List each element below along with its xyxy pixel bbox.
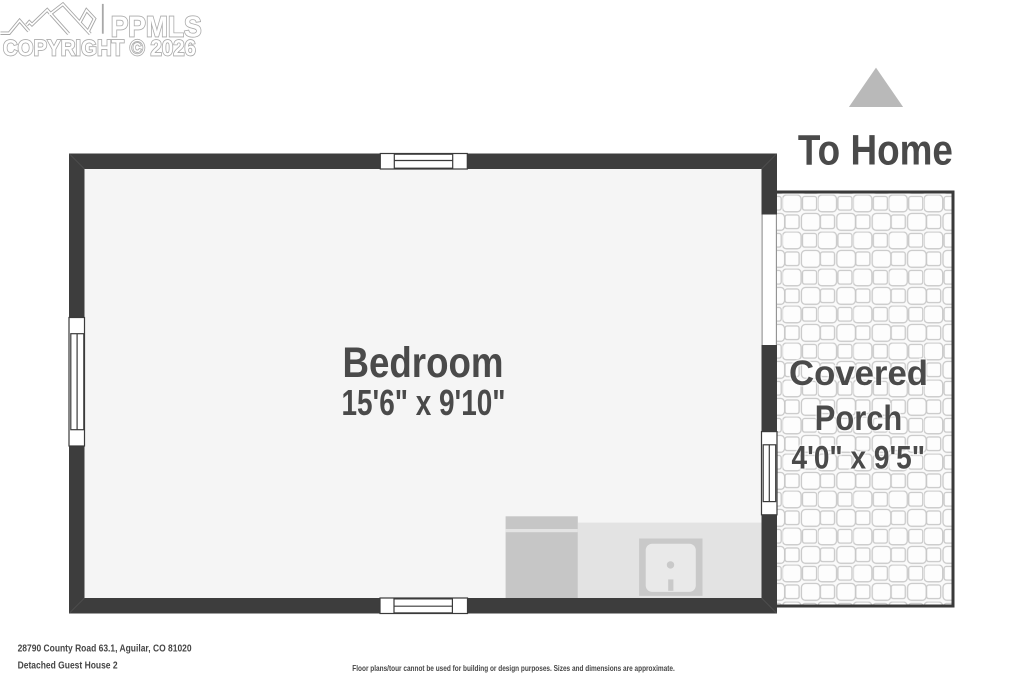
svg-text:Detached Guest House 2: Detached Guest House 2 [18, 660, 118, 672]
svg-text:Porch: Porch [815, 399, 903, 438]
svg-text:Floor plans/tour cannot be use: Floor plans/tour cannot be used for buil… [352, 664, 675, 673]
svg-text:Covered: Covered [789, 354, 928, 393]
svg-text:15'6" x 9'10": 15'6" x 9'10" [342, 382, 506, 423]
svg-text:Bedroom: Bedroom [343, 340, 504, 387]
svg-text:4'0" x 9'5": 4'0" x 9'5" [792, 438, 926, 475]
svg-text:To Home: To Home [798, 127, 953, 175]
svg-text:28790 County Road 63.1, Aguila: 28790 County Road 63.1, Aguilar, CO 8102… [18, 642, 192, 654]
svg-text:COPYRIGHT © 2026: COPYRIGHT © 2026 [3, 36, 196, 61]
